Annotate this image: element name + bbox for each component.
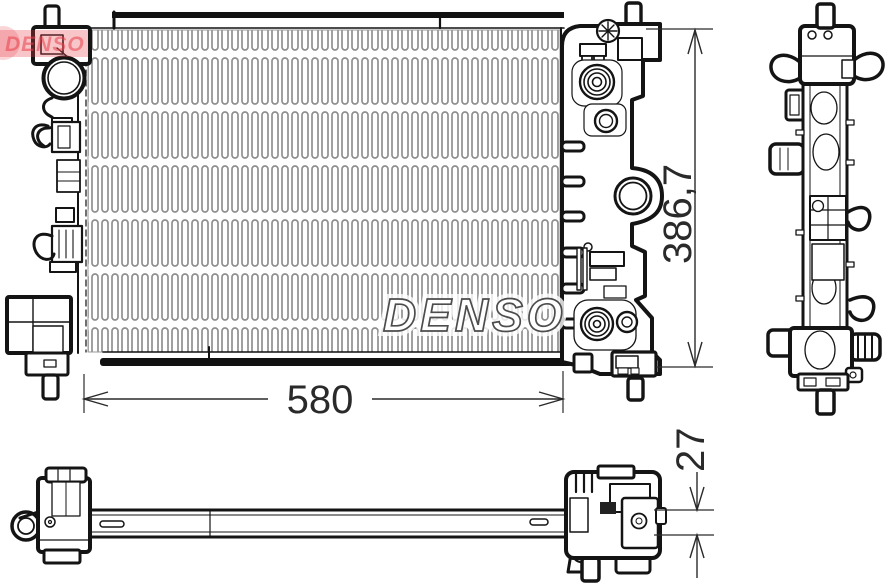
hook-top-right <box>852 53 883 79</box>
screw-cap-star <box>597 20 619 42</box>
bottom-strip <box>88 510 566 537</box>
technical-drawing-page: DENSO DENSO 386,7 580 <box>0 0 888 585</box>
drain-plug <box>581 308 613 340</box>
top-tank-bar <box>90 12 564 28</box>
dimension-depth: 27 <box>654 428 714 579</box>
denso-watermark: DENSO DENSO <box>383 289 567 341</box>
side-profile-view <box>768 4 883 414</box>
denso-logo-stamp: DENSO <box>0 26 88 60</box>
bottom-pin <box>582 558 599 581</box>
filler-cap <box>580 65 614 99</box>
radiator-technical-drawing: DENSO DENSO 386,7 580 <box>0 0 888 585</box>
mount-pin-bottom-left <box>43 375 58 399</box>
dimension-height: 386,7 <box>646 29 713 367</box>
stamp-text: DENSO <box>5 33 85 56</box>
bottom-view <box>12 466 666 581</box>
hook-top-left <box>771 55 802 81</box>
mount-pin-bottom-right <box>628 378 643 400</box>
bottom-right-bracket <box>566 466 666 581</box>
pipe-bottom-right <box>850 334 880 360</box>
pipe-left <box>770 144 804 174</box>
small-port <box>595 110 617 132</box>
svg-text:DENSO: DENSO <box>383 289 567 341</box>
dimension-width: 580 <box>84 371 563 422</box>
depth-value: 27 <box>669 428 713 473</box>
bracket-bottom-right <box>612 352 656 400</box>
clip-grid-side <box>810 196 846 240</box>
mount-pin-top-left <box>45 6 59 28</box>
height-value: 386,7 <box>656 164 700 264</box>
hose-port-right <box>615 178 651 214</box>
hook-low-right <box>850 297 874 321</box>
side-pin-top <box>817 4 834 28</box>
right-tank <box>562 3 662 400</box>
hook-mid-right <box>848 208 870 230</box>
bottom-left-bracket <box>12 468 90 563</box>
side-pin-bottom <box>817 390 834 414</box>
width-value: 580 <box>287 378 354 422</box>
